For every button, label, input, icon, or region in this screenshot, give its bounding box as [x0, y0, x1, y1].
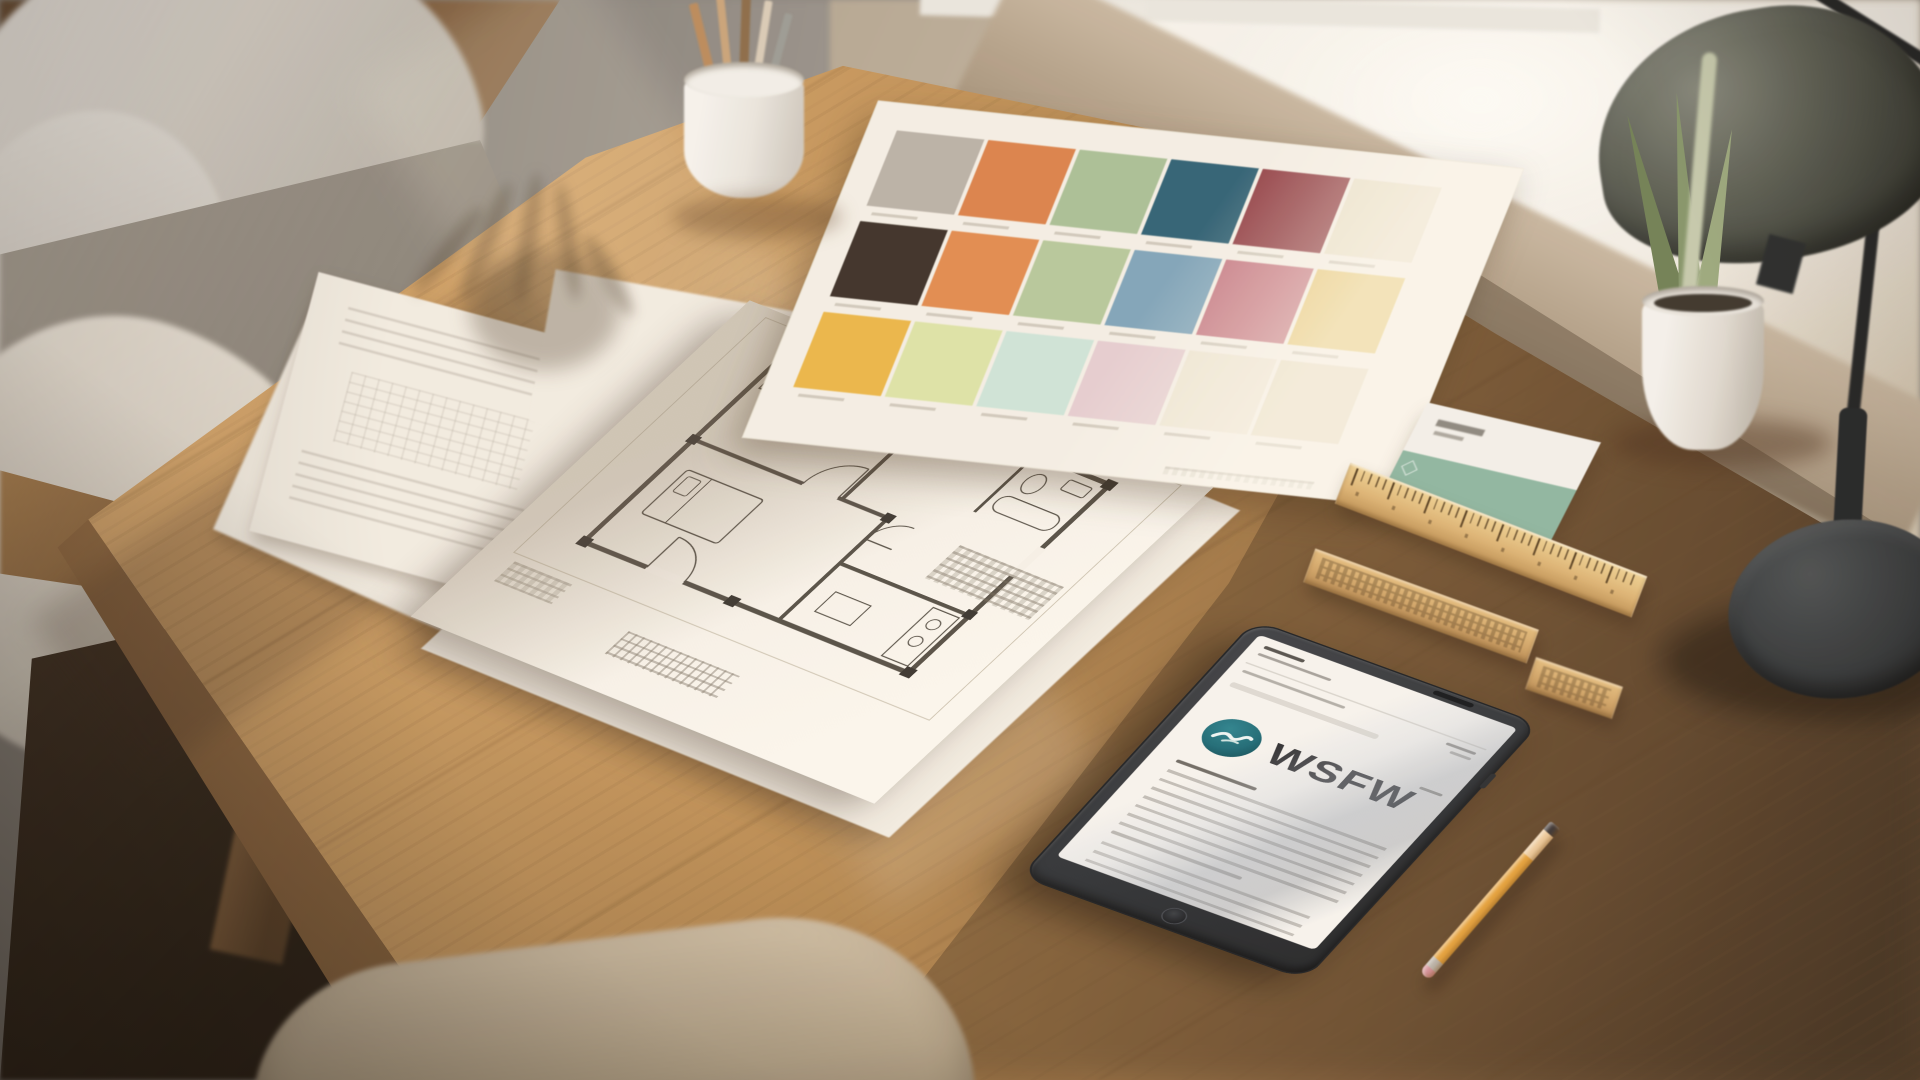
plant-pot-soil [1654, 294, 1752, 312]
pencil-cup-shadow [672, 196, 842, 238]
desk-scene-photo: WSFW [0, 0, 1920, 1080]
pencil-cup-rim [684, 62, 804, 98]
home-button [1158, 906, 1189, 926]
plant-pot [1642, 298, 1764, 450]
